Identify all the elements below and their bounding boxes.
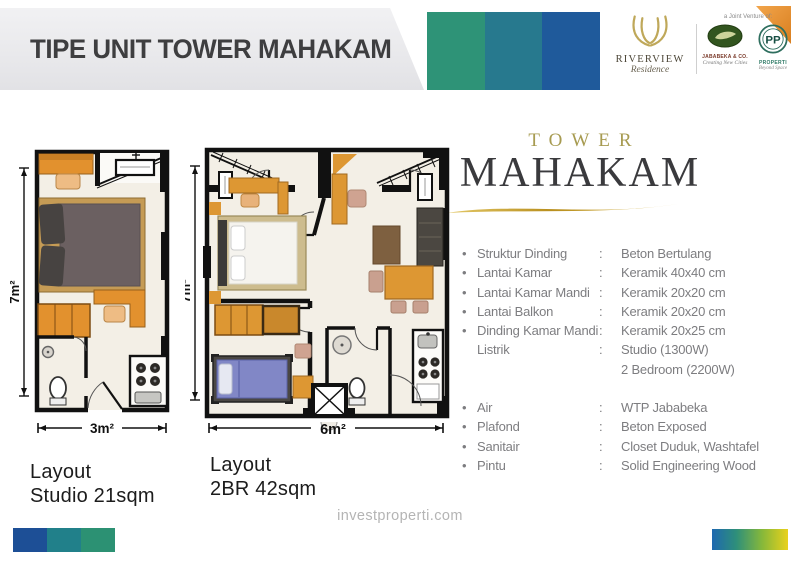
riverview-tulip-icon — [624, 14, 676, 48]
caption-2br: Layout 2BR 42sqm — [210, 453, 316, 502]
brand-bar-teal — [485, 12, 543, 90]
tower-title-block: TOWER MAHAKAM — [440, 130, 720, 195]
studio-kitchen — [130, 356, 167, 406]
pp-tagline: Beyond Space — [752, 66, 794, 71]
bedroom2-chair — [295, 344, 311, 358]
caption-studio-line1: Layout — [30, 460, 155, 484]
riverview-logo: RIVERVIEW Residence — [610, 14, 690, 75]
spec-row: • Lantai Balkon : Keramik 20x20 cm — [462, 302, 798, 321]
spec-row: • Struktur Dinding : Beton Bertulang — [462, 244, 798, 263]
toilet2-icon — [349, 378, 365, 405]
ac-unit-right — [418, 174, 432, 200]
spec-row: • Sanitair : Closet Duduk, Washtafel — [462, 437, 798, 456]
brand-color-bar — [427, 12, 600, 90]
dining-table — [385, 266, 433, 299]
spec-value: 2 Bedroom (2200W) — [621, 360, 798, 379]
page-title: TIPE UNIT TOWER MAHAKAM — [30, 8, 391, 90]
logo-divider — [696, 24, 697, 74]
tower-pre-title: TOWER — [440, 130, 720, 152]
svg-text:PP: PP — [765, 34, 781, 46]
floorplan-2br: 7m² — [185, 138, 465, 443]
riverview-sub: Residence — [610, 65, 690, 75]
toilet-icon — [50, 377, 66, 405]
studio-wardrobe — [38, 304, 90, 337]
footer-website: investproperti.com — [0, 508, 800, 524]
spec-colon: : — [599, 340, 621, 359]
spec-row: • Pintu : Solid Engineering Wood — [462, 456, 798, 475]
spec-value: Studio (1300W) — [621, 340, 798, 359]
spec-row: Listrik : Studio (1300W) — [462, 340, 798, 359]
spec-row: • Lantai Kamar : Keramik 40x40 cm — [462, 263, 798, 282]
spec-value: Keramik 40x40 cm — [621, 263, 798, 282]
spec-colon: : — [599, 244, 621, 263]
dining-chair — [391, 301, 406, 313]
spec-colon: : — [599, 437, 621, 456]
spec-colon: : — [599, 263, 621, 282]
spec-bullet: • — [462, 456, 477, 475]
nightstand-top — [209, 202, 221, 215]
studio-side-dim: 7m² — [10, 280, 22, 304]
dining-chair — [413, 301, 428, 313]
brand-bar-green — [427, 12, 485, 90]
spec-label: Dinding Kamar Mandi — [477, 321, 599, 340]
spec-row: • Lantai Kamar Mandi : Keramik 20x20 cm — [462, 283, 798, 302]
spec-label: Plafond — [477, 417, 599, 436]
spec-label: Lantai Kamar — [477, 263, 599, 282]
spec-label: Struktur Dinding — [477, 244, 599, 263]
floorplan-studio: 7m² — [10, 140, 180, 440]
studio-bed — [39, 198, 145, 292]
spec-colon: : — [599, 302, 621, 321]
riverview-name: RIVERVIEW — [610, 54, 690, 65]
brochure-page: TIPE UNIT TOWER MAHAKAM RIVERVIEW Reside… — [0, 0, 800, 565]
joint-venture-label: a Joint Venture of: — [700, 14, 796, 20]
caption-studio-line2: Studio 21sqm — [30, 484, 155, 508]
spec-list: • Struktur Dinding : Beton Bertulang • L… — [462, 244, 798, 475]
bedroom2-table — [293, 376, 313, 398]
header-banner: TIPE UNIT TOWER MAHAKAM — [0, 8, 424, 90]
spec-label — [477, 360, 599, 379]
spec-colon: : — [599, 398, 621, 417]
spec-label: Listrik — [477, 340, 599, 359]
spec-value: Beton Exposed — [621, 417, 798, 436]
spec-value: Keramik 20x20 cm — [621, 283, 798, 302]
spec-row: • Plafond : Beton Exposed — [462, 417, 798, 436]
jababeka-tagline: Creating New Cities — [701, 60, 749, 66]
bottom-left-bar — [13, 528, 115, 552]
spec-colon: : — [599, 321, 621, 340]
spec-label: Lantai Kamar Mandi — [477, 283, 599, 302]
spec-label: Lantai Balkon — [477, 302, 599, 321]
spec-value: WTP Jababeka — [621, 398, 798, 417]
bottom-right-bar — [712, 529, 788, 550]
tv-cabinet — [373, 226, 400, 264]
jababeka-icon — [707, 24, 743, 48]
spec-label: Air — [477, 398, 599, 417]
bottom-bar-teal — [47, 528, 81, 552]
brand-bar-blue — [542, 12, 600, 90]
spec-value: Solid Engineering Wood — [621, 456, 798, 475]
spec-row: 2 Bedroom (2200W) — [462, 360, 798, 379]
spec-value: Keramik 20x20 cm — [621, 302, 798, 321]
spec-label: Sanitair — [477, 437, 599, 456]
bedroom2-bed — [211, 354, 293, 404]
sink2-icon — [418, 335, 437, 348]
pp-icon: PP — [758, 24, 788, 54]
twobr-bottom-dim: 6m² — [320, 422, 346, 438]
spec-colon: : — [599, 283, 621, 302]
tower-name: MAHAKAM — [440, 152, 720, 195]
bedroom2-wardrobe — [215, 305, 299, 335]
nightstand-bottom — [209, 291, 221, 304]
caption-studio: Layout Studio 21sqm — [30, 460, 155, 509]
caption-2br-line1: Layout — [210, 453, 316, 477]
caption-2br-line2: 2BR 42sqm — [210, 477, 316, 501]
master-bed — [218, 216, 306, 290]
spec-colon: : — [599, 456, 621, 475]
jababeka-logo: JABABEKA & CO. Creating New Cities — [701, 24, 749, 66]
bottom-bar-green — [81, 528, 115, 552]
sink-icon — [135, 392, 161, 403]
spec-value: Closet Duduk, Washtafel — [621, 437, 798, 456]
twobr-side-dim: 7m² — [185, 279, 193, 303]
spec-colon — [599, 360, 621, 379]
spec-value: Beton Bertulang — [621, 244, 798, 263]
spec-value: Keramik 20x25 cm — [621, 321, 798, 340]
pp-properti-logo: PP PROPERTI Beyond Space — [752, 24, 794, 71]
dining-chair — [369, 271, 383, 292]
studio-bottom-dim: 3m² — [90, 421, 115, 436]
gold-swoosh — [445, 200, 680, 218]
spec-row: • Air : WTP Jababeka — [462, 398, 798, 417]
spec-label: Pintu — [477, 456, 599, 475]
spec-row: • Dinding Kamar Mandi : Keramik 20x25 cm — [462, 321, 798, 340]
bottom-bar-blue — [13, 528, 47, 552]
living-chair — [348, 190, 366, 207]
spec-colon: : — [599, 417, 621, 436]
